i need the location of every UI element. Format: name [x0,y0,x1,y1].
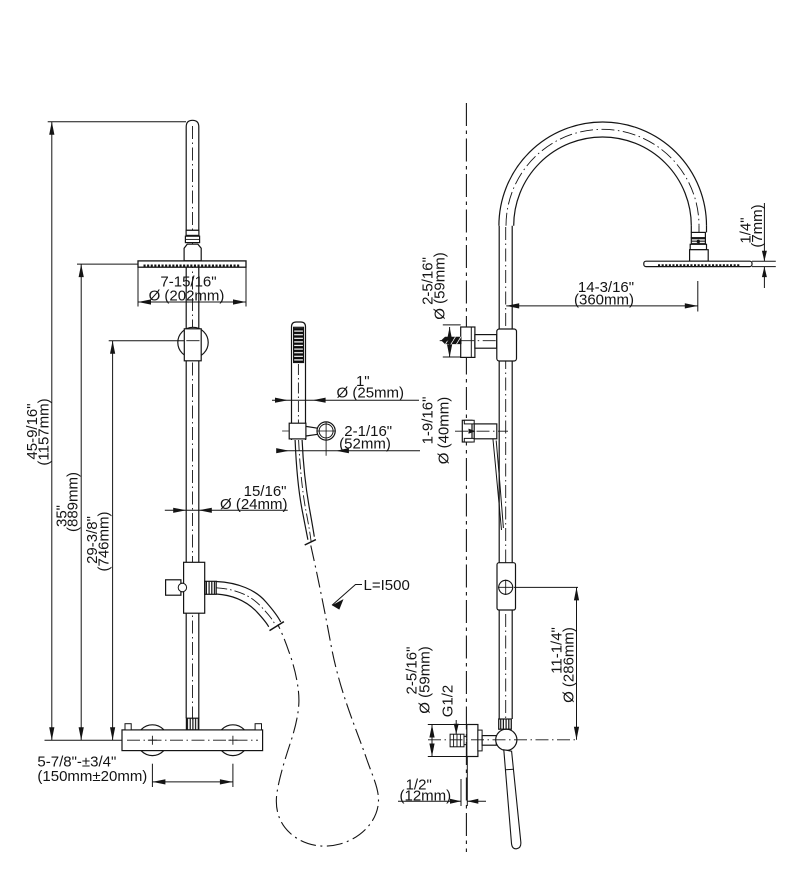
svg-text:Ø (40mm): Ø (40mm) [435,397,452,465]
svg-text:Ø (59mm): Ø (59mm) [416,646,433,714]
svg-text:(1157mm): (1157mm) [35,398,52,465]
svg-text:G1/2: G1/2 [439,685,456,718]
svg-text:L=I500: L=I500 [364,577,410,594]
svg-text:Ø (59mm): Ø (59mm) [431,252,448,320]
svg-text:Ø (25mm): Ø (25mm) [337,385,405,402]
svg-text:(150mm±20mm): (150mm±20mm) [37,768,147,785]
svg-text:(7mm): (7mm) [749,204,766,247]
svg-text:(360mm): (360mm) [574,292,634,309]
svg-text:(889mm): (889mm) [64,472,81,532]
svg-text:(52mm): (52mm) [339,436,391,453]
svg-text:(746mm): (746mm) [95,511,112,571]
svg-text:1-9/16": 1-9/16" [420,397,437,445]
svg-text:Ø (202mm): Ø (202mm) [149,288,225,305]
svg-text:Ø (24mm): Ø (24mm) [220,496,288,513]
svg-text:(12mm): (12mm) [400,787,452,804]
svg-text:Ø (286mm): Ø (286mm) [560,627,577,703]
